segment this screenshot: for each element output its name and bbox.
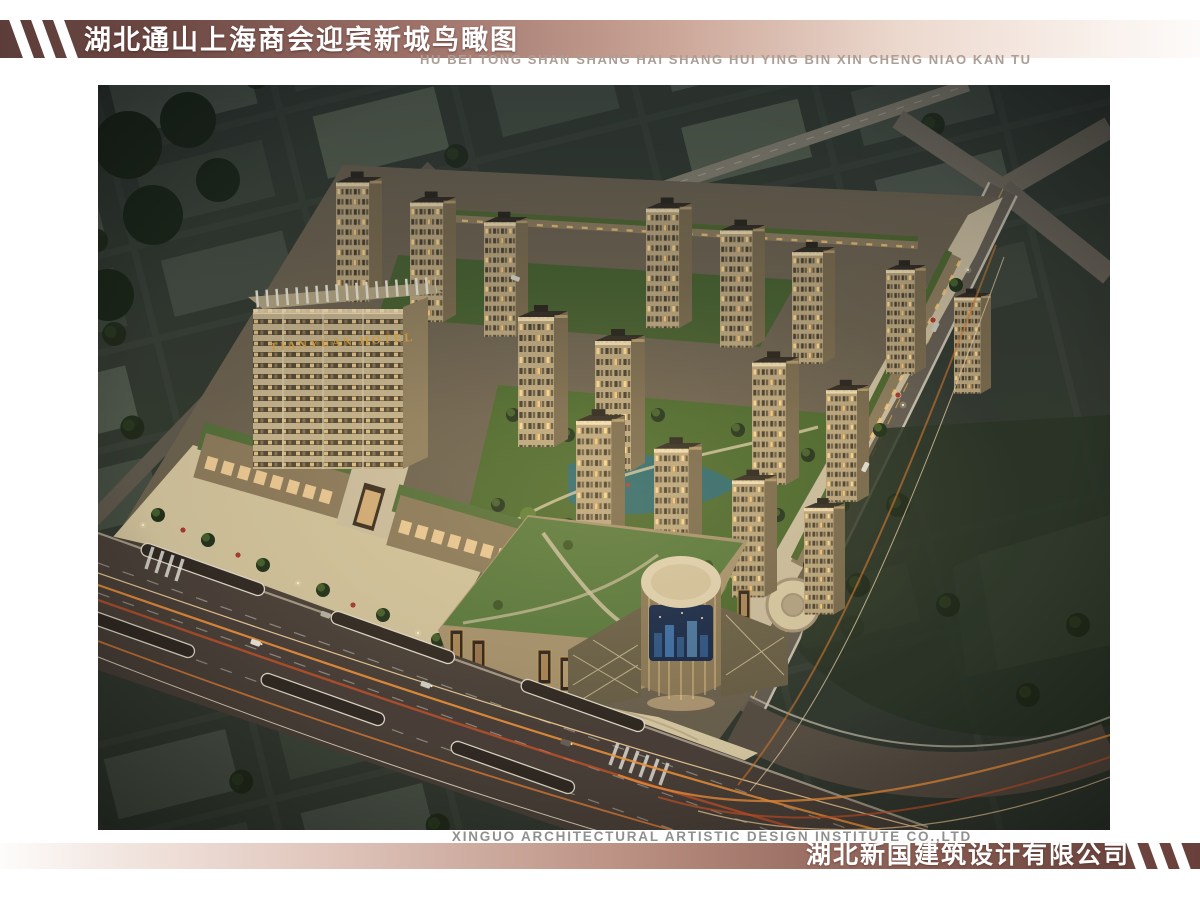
- design-institute-credit: XINGUO ARCHITECTURAL ARTISTIC DESIGN INS…: [304, 829, 1120, 844]
- page-title-pinyin: HU BEI TONG SHAN SHANG HAI SHANG HUI YIN…: [420, 52, 1032, 67]
- presentation-board: 湖北通山上海商会迎宾新城鸟瞰图 HU BEI TONG SHAN SHANG H…: [0, 0, 1200, 900]
- diagonal-stripe-icon: [1148, 843, 1168, 869]
- aerial-rendering-image: TIANYUAN HOTEL: [98, 85, 1110, 830]
- diagonal-stripe-icon: [9, 20, 34, 58]
- diagonal-stripe-icon: [1170, 843, 1190, 869]
- diagonal-stripe-icon: [53, 20, 78, 58]
- aerial-rendering: TIANYUAN HOTEL: [98, 85, 1110, 830]
- diagonal-stripe-icon: [31, 20, 56, 58]
- vignette: [98, 85, 1110, 830]
